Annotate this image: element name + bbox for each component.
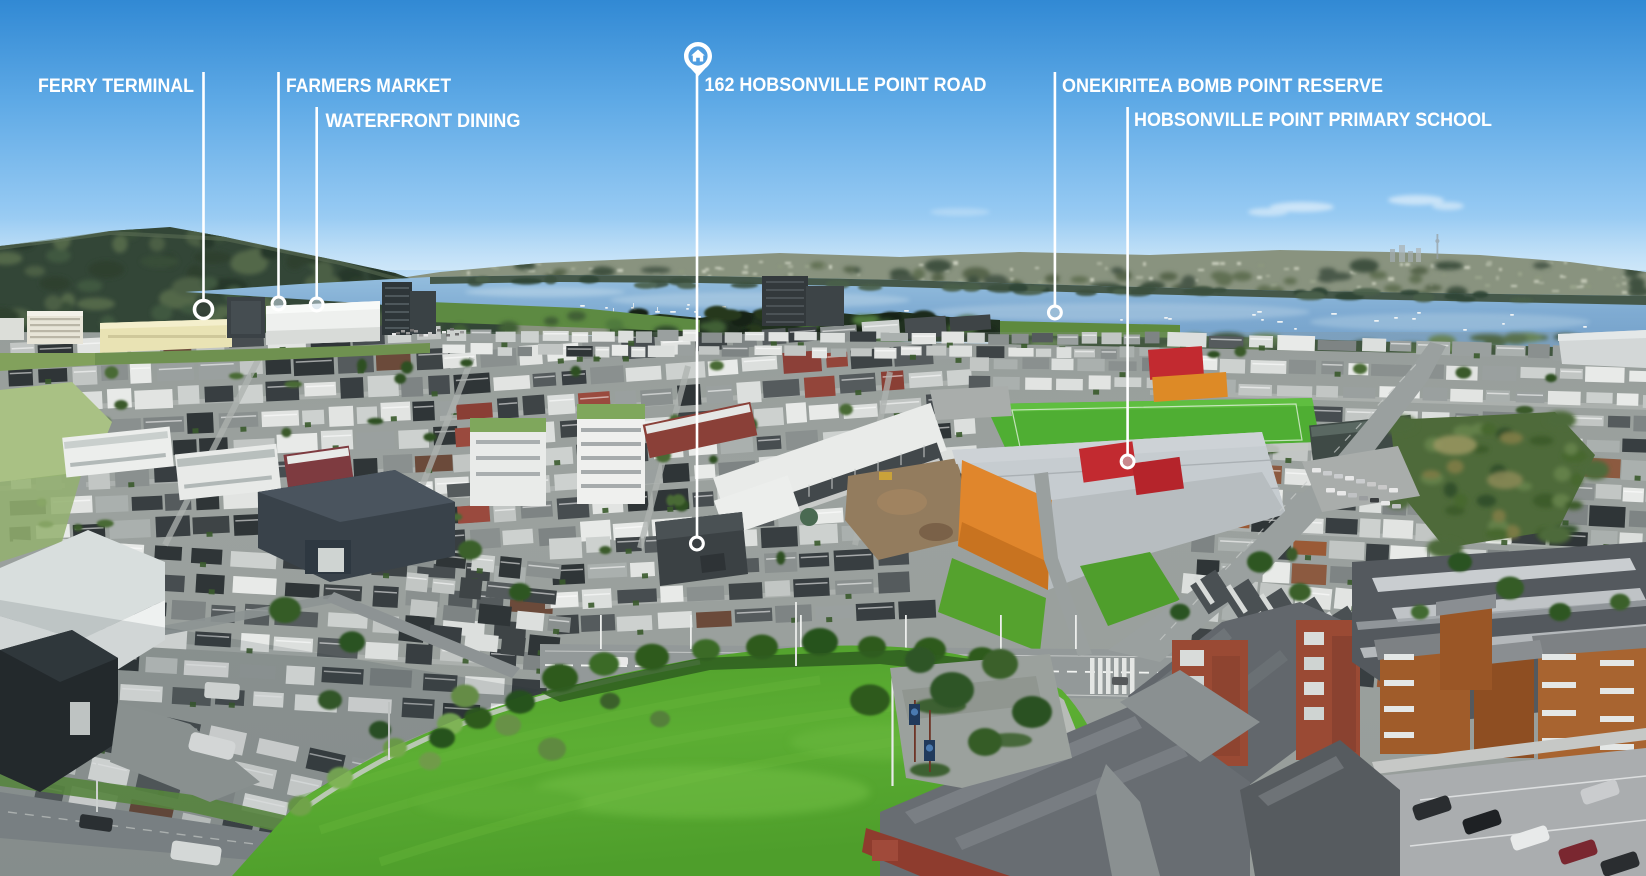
svg-text:162 HOBSONVILLE POINT ROAD: 162 HOBSONVILLE POINT ROAD xyxy=(705,75,987,96)
svg-text:ONEKIRITEA BOMB POINT RESERVE: ONEKIRITEA BOMB POINT RESERVE xyxy=(1062,76,1383,97)
svg-text:HOBSONVILLE POINT PRIMARY SCHO: HOBSONVILLE POINT PRIMARY SCHOOL xyxy=(1134,110,1492,131)
svg-text:WATERFRONT DINING: WATERFRONT DINING xyxy=(326,111,521,132)
svg-text:FARMERS MARKET: FARMERS MARKET xyxy=(286,76,451,97)
svg-text:FERRY TERMINAL: FERRY TERMINAL xyxy=(38,76,194,97)
